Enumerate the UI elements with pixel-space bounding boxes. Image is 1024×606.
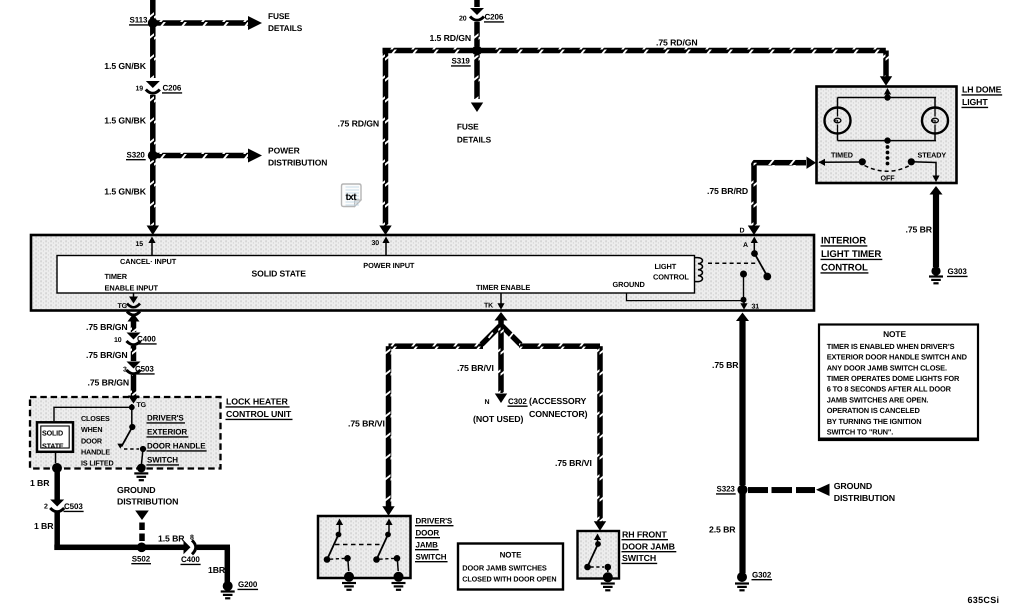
svg-text:6 TO 8 SECONDS AFTER ALL DOOR: 6 TO 8 SECONDS AFTER ALL DOOR [827,385,952,394]
svg-text:1.5 RD/GN: 1.5 RD/GN [430,33,472,43]
svg-text:.75 BR/GN: .75 BR/GN [88,378,130,388]
svg-text:1.5 GN/BK: 1.5 GN/BK [104,187,146,197]
svg-text:S113: S113 [130,16,148,25]
svg-text:STEADY: STEADY [918,151,947,160]
svg-text:DETAILS: DETAILS [268,23,303,33]
svg-text:8: 8 [190,535,194,542]
svg-text:EXTERIOR: EXTERIOR [147,428,187,437]
svg-text:C206: C206 [163,84,182,93]
svg-text:TK: TK [484,303,493,310]
svg-text:N: N [485,399,490,406]
svg-text:.75 BR/GN: .75 BR/GN [86,322,128,332]
svg-text:C503: C503 [64,502,83,511]
svg-text:CLOSED WITH DOOR OPEN: CLOSED WITH DOOR OPEN [462,574,556,583]
svg-text:STATE: STATE [42,441,64,450]
svg-text:CONTROL: CONTROL [653,272,689,281]
svg-text:SWITCH: SWITCH [416,552,447,561]
svg-text:2.5 BR: 2.5 BR [709,525,736,535]
svg-text:CONTROL UNIT: CONTROL UNIT [226,409,292,419]
svg-text:JAMB SWITCHES ARE OPEN.: JAMB SWITCHES ARE OPEN. [827,395,929,404]
svg-text:DISTRIBUTION: DISTRIBUTION [268,157,327,167]
svg-text:G302: G302 [752,570,772,579]
svg-text:LIGHT: LIGHT [655,262,677,271]
svg-text:IS LIFTED: IS LIFTED [81,458,114,467]
svg-text:DRIVER'S: DRIVER'S [416,516,453,525]
svg-text:C400: C400 [137,335,156,344]
svg-text:RH FRONT: RH FRONT [622,529,667,539]
svg-text:C302: C302 [508,397,527,406]
svg-text:DRIVER'S: DRIVER'S [147,414,184,423]
svg-text:SWITCH: SWITCH [147,456,178,465]
svg-text:TIMER OPERATES DOME LIGHTS FOR: TIMER OPERATES DOME LIGHTS FOR [827,374,960,383]
svg-text:G200: G200 [238,580,258,589]
svg-text:OPERATION IS CANCELED: OPERATION IS CANCELED [827,406,921,415]
svg-text:SWITCH TO "RUN".: SWITCH TO "RUN". [827,428,894,437]
svg-text:15: 15 [136,241,144,248]
svg-text:GROUND: GROUND [613,280,646,289]
svg-text:10: 10 [114,337,122,344]
svg-text:TG: TG [118,303,128,310]
svg-text:30: 30 [372,240,380,247]
svg-text:3: 3 [123,367,127,374]
svg-text:S323: S323 [717,485,736,494]
svg-text:(NOT USED): (NOT USED) [473,414,523,424]
svg-text:SOLID STATE: SOLID STATE [252,269,307,279]
svg-text:1.5 GN/BK: 1.5 GN/BK [104,61,146,71]
svg-text:NOTE: NOTE [500,551,523,560]
svg-text:20: 20 [459,16,467,23]
svg-text:LH DOME: LH DOME [962,85,1002,95]
svg-text:.75 BR/VI: .75 BR/VI [555,458,592,468]
svg-text:.75 BR: .75 BR [906,225,933,235]
svg-text:DOOR: DOOR [416,528,440,537]
svg-text:DISTRIBUTION: DISTRIBUTION [834,493,895,503]
svg-text:HANDLE: HANDLE [81,448,110,457]
svg-text:GROUND: GROUND [834,481,873,491]
svg-text:.75 BR/VI: .75 BR/VI [348,419,385,429]
svg-text:INTERIOR: INTERIOR [821,236,866,247]
svg-text:DOOR JAMB: DOOR JAMB [622,541,675,551]
svg-text:TIMER ENABLE: TIMER ENABLE [476,283,530,292]
svg-text:C400: C400 [181,555,200,564]
svg-text:DOOR: DOOR [81,436,103,445]
svg-text:1.5 BR: 1.5 BR [158,534,185,544]
svg-text:TIMER IS ENABLED WHEN DRIVER’S: TIMER IS ENABLED WHEN DRIVER’S [827,342,955,351]
svg-text:DOOR HANDLE: DOOR HANDLE [147,442,206,451]
svg-text:NOTE: NOTE [883,329,906,339]
svg-text:BY TURNING THE IGNITION: BY TURNING THE IGNITION [827,417,922,426]
svg-text:GROUND: GROUND [117,485,156,495]
svg-text:LIGHT: LIGHT [962,97,988,107]
svg-text:D: D [740,228,745,235]
svg-text:TIMED: TIMED [831,151,853,160]
svg-text:DETAILS: DETAILS [457,135,492,145]
svg-text:1 BR: 1 BR [30,478,50,488]
svg-text:ENABLE INPUT: ENABLE INPUT [105,284,159,293]
svg-text:S320: S320 [127,150,146,159]
svg-text:C206: C206 [485,13,504,22]
svg-text:SOLID: SOLID [42,429,63,438]
svg-text:S319: S319 [452,57,471,66]
svg-text:POWER INPUT: POWER INPUT [363,261,415,270]
svg-text:CLOSES: CLOSES [81,414,110,423]
svg-text:.75 RD/GN: .75 RD/GN [656,38,698,48]
svg-text:TG: TG [137,402,147,409]
svg-text:DISTRIBUTION: DISTRIBUTION [117,497,178,507]
svg-text:A: A [743,242,748,249]
svg-text:S502: S502 [132,554,151,563]
svg-text:txt: txt [346,192,358,203]
svg-text:POWER: POWER [268,145,300,155]
svg-text:1.5 GN/BK: 1.5 GN/BK [104,116,146,126]
svg-text:635CSi: 635CSi [968,595,1000,605]
svg-text:.75 BR/GN: .75 BR/GN [86,350,128,360]
svg-text:19: 19 [136,86,144,93]
svg-text:LIGHT TIMER: LIGHT TIMER [821,249,881,260]
svg-text:LOCK HEATER: LOCK HEATER [226,397,289,407]
svg-text:FUSE: FUSE [457,122,479,132]
svg-text:31: 31 [752,304,760,311]
svg-text:SWITCH: SWITCH [622,553,656,563]
svg-text:(ACCESSORY: (ACCESSORY [529,396,587,406]
svg-text:.75 BR/VI: .75 BR/VI [457,363,494,373]
svg-text:.75 BR/RD: .75 BR/RD [707,186,748,196]
svg-text:CANCEL· INPUT: CANCEL· INPUT [120,257,177,266]
svg-text:CONNECTOR): CONNECTOR) [529,409,588,419]
svg-text:.75 BR: .75 BR [712,360,739,370]
svg-text:CONTROL: CONTROL [821,263,868,274]
svg-text:1BR: 1BR [208,565,226,575]
svg-text:OFF: OFF [881,174,896,183]
svg-text:TIMER: TIMER [105,272,128,281]
svg-text:FUSE: FUSE [268,11,290,21]
svg-text:WHEN: WHEN [81,425,102,434]
svg-text:DOOR JAMB SWITCHES: DOOR JAMB SWITCHES [462,563,547,572]
svg-text:G303: G303 [948,267,968,276]
svg-text:.75 RD/GN: .75 RD/GN [338,119,380,129]
svg-text:ANY DOOR JAMB SWITCH CLOSE.: ANY DOOR JAMB SWITCH CLOSE. [827,363,947,372]
svg-text:1 BR: 1 BR [34,521,54,531]
svg-text:EXTERIOR DOOR HANDLE SWITCH AN: EXTERIOR DOOR HANDLE SWITCH AND [827,353,968,362]
svg-text:JAMB: JAMB [416,540,439,549]
svg-text:2: 2 [44,504,48,511]
svg-text:C503: C503 [135,365,154,374]
